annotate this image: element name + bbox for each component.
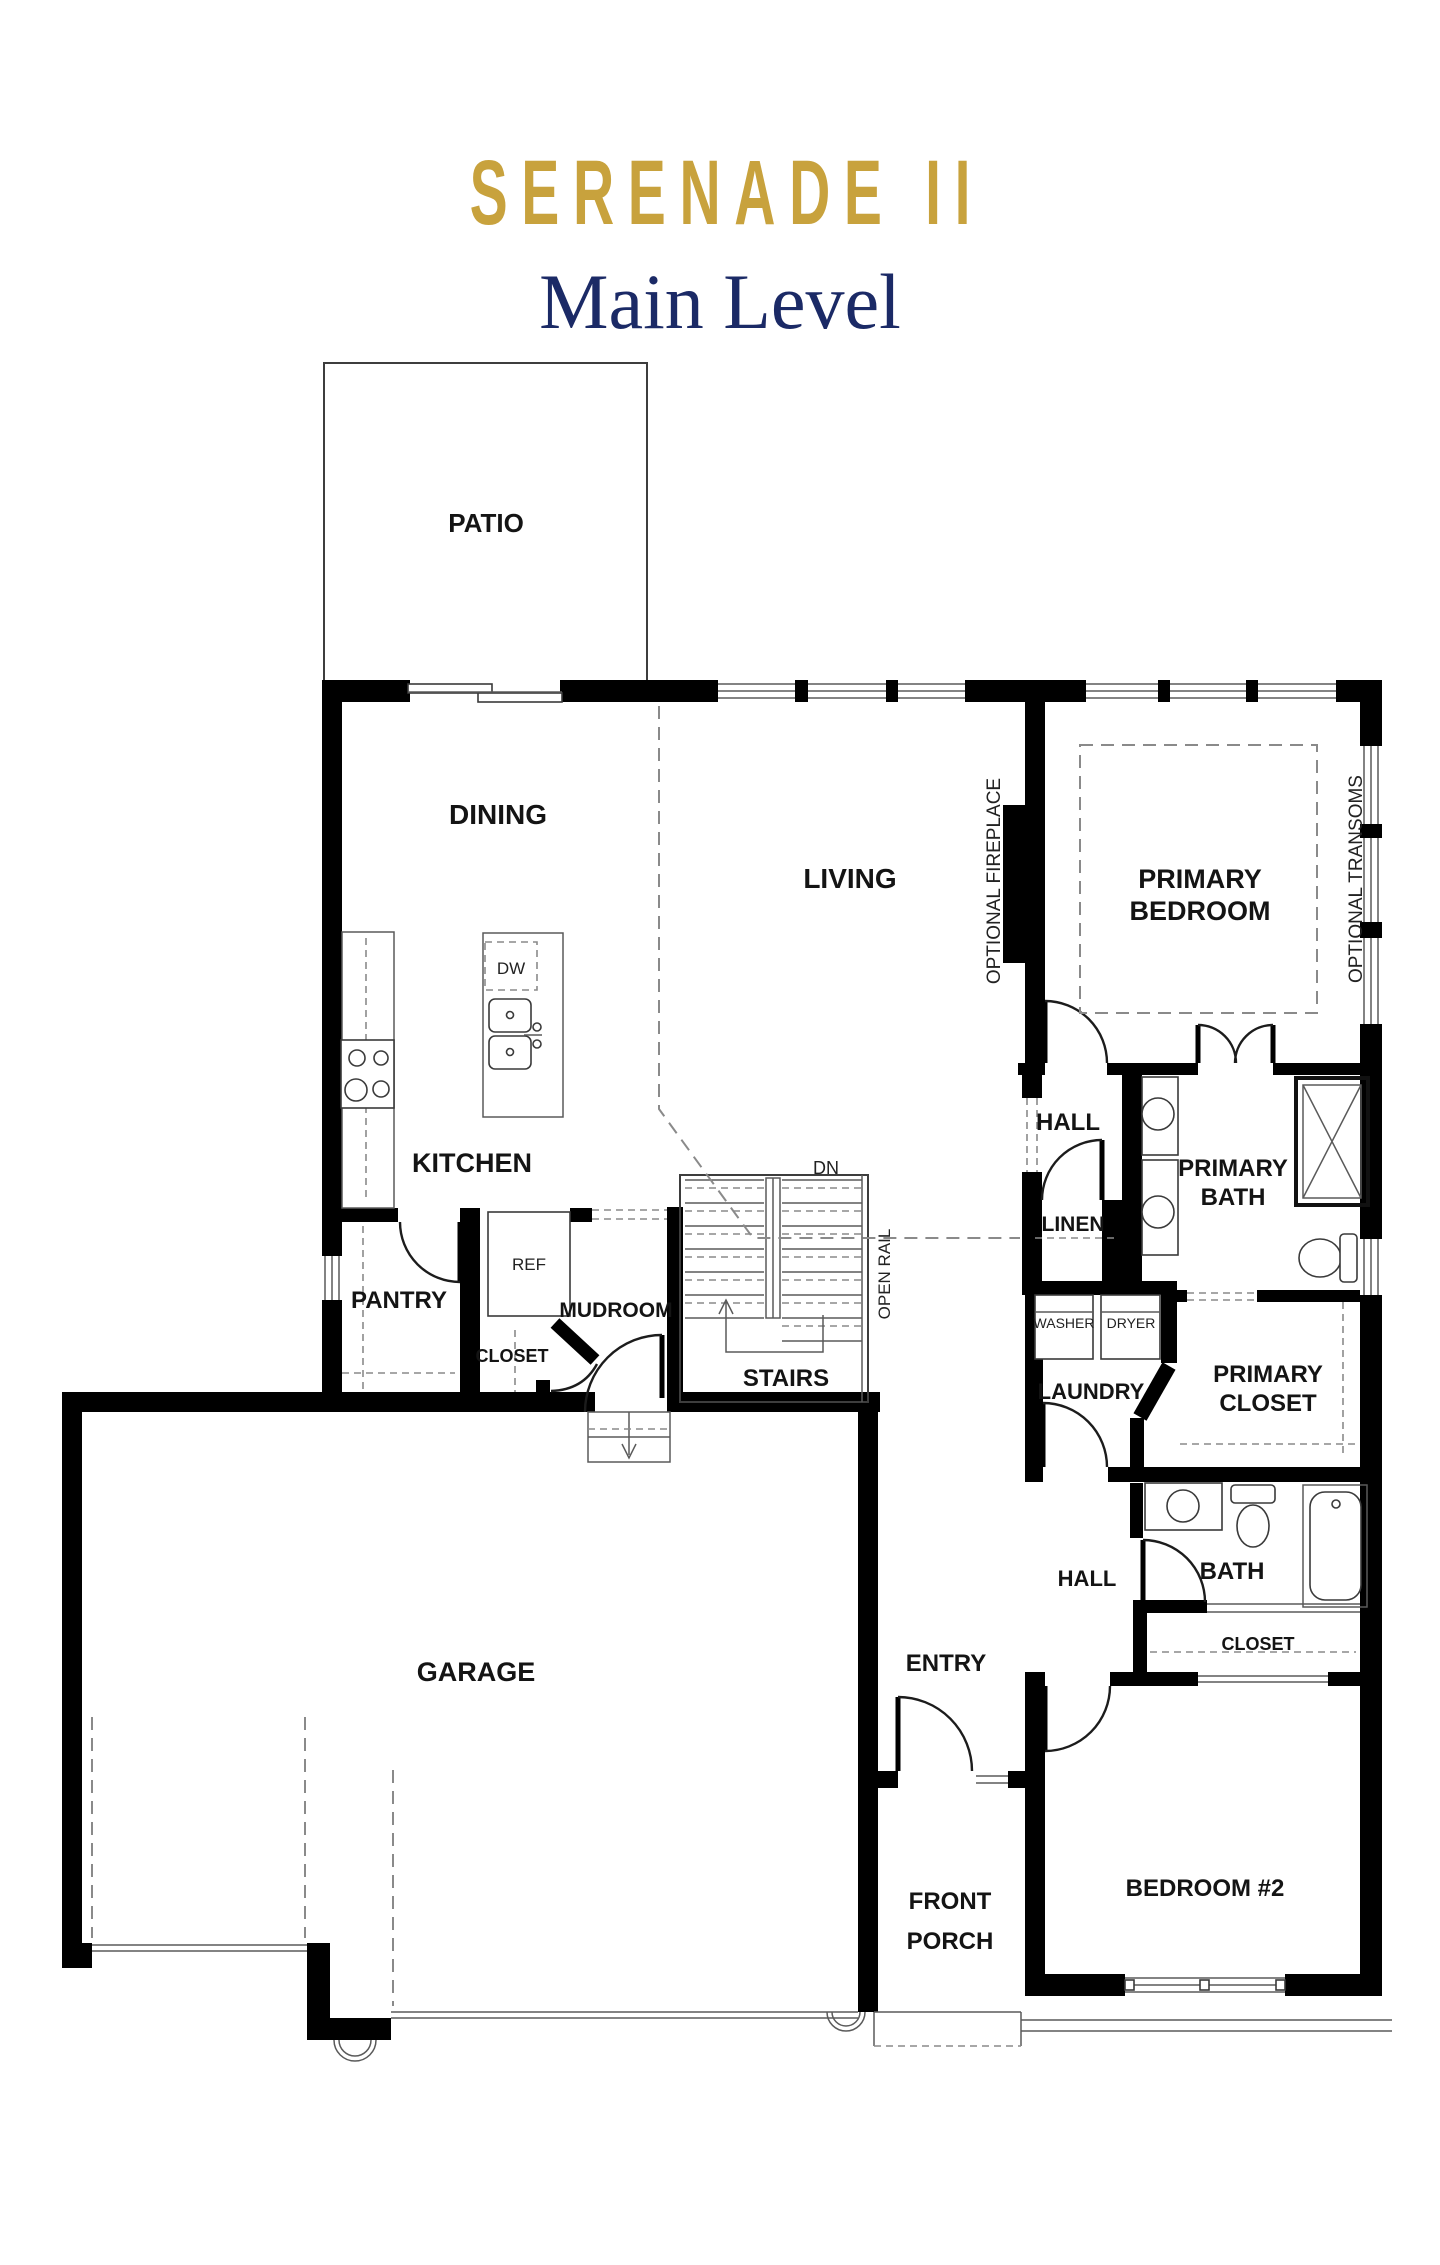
- label-stairs: STAIRS: [743, 1365, 829, 1392]
- label-bedroom2: BEDROOM #2: [1126, 1875, 1285, 1902]
- primary-bedroom-windows: [1086, 684, 1336, 698]
- label-linen: LINEN: [1042, 1213, 1105, 1236]
- primary-closet-opening: [1187, 1293, 1257, 1300]
- plan-title: SERENADE II: [470, 142, 984, 244]
- label-primary-closet-1: PRIMARY: [1213, 1361, 1323, 1388]
- label-bedroom2-closet: CLOSET: [1221, 1634, 1294, 1654]
- garage-door-right: [391, 2012, 858, 2018]
- label-primary-bath-1: PRIMARY: [1178, 1155, 1288, 1182]
- mudroom-closet-angled-wall: [555, 1323, 595, 1360]
- linen-door: [1042, 1140, 1102, 1200]
- bathtub: [1303, 1485, 1367, 1607]
- garage-ceiling-lines: [92, 1717, 393, 2006]
- entry-sidelite: [976, 1776, 1008, 1783]
- label-bath: BATH: [1200, 1558, 1265, 1585]
- patio-sliding-door: [408, 684, 562, 702]
- label-dryer: DRYER: [1107, 1315, 1156, 1331]
- label-stairs-direction: DN: [813, 1158, 839, 1178]
- bath-door: [1143, 1540, 1205, 1602]
- primary-bedroom-door: [1045, 1001, 1107, 1063]
- label-lower-hall: HALL: [1058, 1566, 1117, 1591]
- label-optional-transoms: OPTIONAL TRANSOMS: [1346, 775, 1367, 983]
- label-garage: GARAGE: [417, 1657, 536, 1687]
- living-windows: [718, 684, 965, 698]
- primary-shower: [1296, 1078, 1368, 1205]
- label-living: LIVING: [803, 863, 896, 894]
- primary-bath-window: [1364, 1239, 1378, 1295]
- label-primary-closet-2: CLOSET: [1219, 1390, 1317, 1417]
- label-patio: PATIO: [448, 508, 524, 538]
- porch-slab: [874, 2012, 1021, 2046]
- cooktop: [341, 1040, 394, 1108]
- bedroom2-closet-opening: [1198, 1676, 1328, 1682]
- label-refrigerator: REF: [512, 1255, 546, 1274]
- label-washer: WASHER: [1034, 1315, 1095, 1331]
- garage-steps: [588, 1412, 670, 1462]
- label-primary-bedroom-2: BEDROOM: [1130, 896, 1271, 926]
- bath-toilet: [1231, 1485, 1275, 1547]
- label-open-rail: OPEN RAIL: [875, 1229, 894, 1320]
- bedroom2-window: [1125, 1978, 1285, 1992]
- label-optional-fireplace: OPTIONAL FIREPLACE: [984, 778, 1005, 984]
- label-laundry: LAUNDRY: [1038, 1379, 1145, 1404]
- laundry-door: [1043, 1403, 1107, 1467]
- kitchen-mudroom-opening: [592, 1210, 667, 1219]
- bedroom2-door: [1045, 1686, 1110, 1751]
- front-walk-lines: [1021, 2020, 1392, 2031]
- label-mudroom: MUDROOM: [559, 1299, 672, 1322]
- bath-vanity: [1145, 1483, 1222, 1530]
- label-mudroom-closet: CLOSET: [475, 1346, 548, 1366]
- living-floor-boundary: [659, 706, 1020, 1238]
- primary-bath-double-doors: [1198, 1025, 1273, 1063]
- label-primary-bath-2: BATH: [1201, 1184, 1266, 1211]
- garage-door-left: [92, 1945, 307, 1951]
- plan-title-block: SERENADE II Main Level: [470, 142, 984, 345]
- pantry-window: [325, 1256, 339, 1300]
- primary-toilet: [1299, 1234, 1357, 1282]
- label-dining: DINING: [449, 799, 547, 830]
- label-front-porch-1: FRONT: [909, 1888, 992, 1915]
- pantry-door: [400, 1222, 460, 1282]
- label-upper-hall: HALL: [1036, 1109, 1100, 1136]
- primary-vanity: [1142, 1077, 1178, 1255]
- bedroom2-closet-back: [1207, 1604, 1360, 1612]
- label-entry: ENTRY: [906, 1650, 986, 1677]
- label-kitchen: KITCHEN: [412, 1148, 532, 1178]
- label-primary-bedroom-1: PRIMARY: [1138, 864, 1262, 894]
- label-front-porch-2: PORCH: [907, 1928, 994, 1955]
- floor-plan-page: SERENADE II Main Level: [0, 0, 1440, 2260]
- front-door: [898, 1697, 972, 1771]
- kitchen-sink: [489, 999, 542, 1069]
- mudroom-garage-door: [585, 1335, 662, 1412]
- label-dishwasher: DW: [497, 959, 525, 978]
- plan-subtitle: Main Level: [539, 258, 901, 345]
- floor-plan-drawing: SERENADE II Main Level: [0, 0, 1440, 2260]
- porch-columns: [334, 2012, 865, 2061]
- label-pantry: PANTRY: [351, 1287, 447, 1314]
